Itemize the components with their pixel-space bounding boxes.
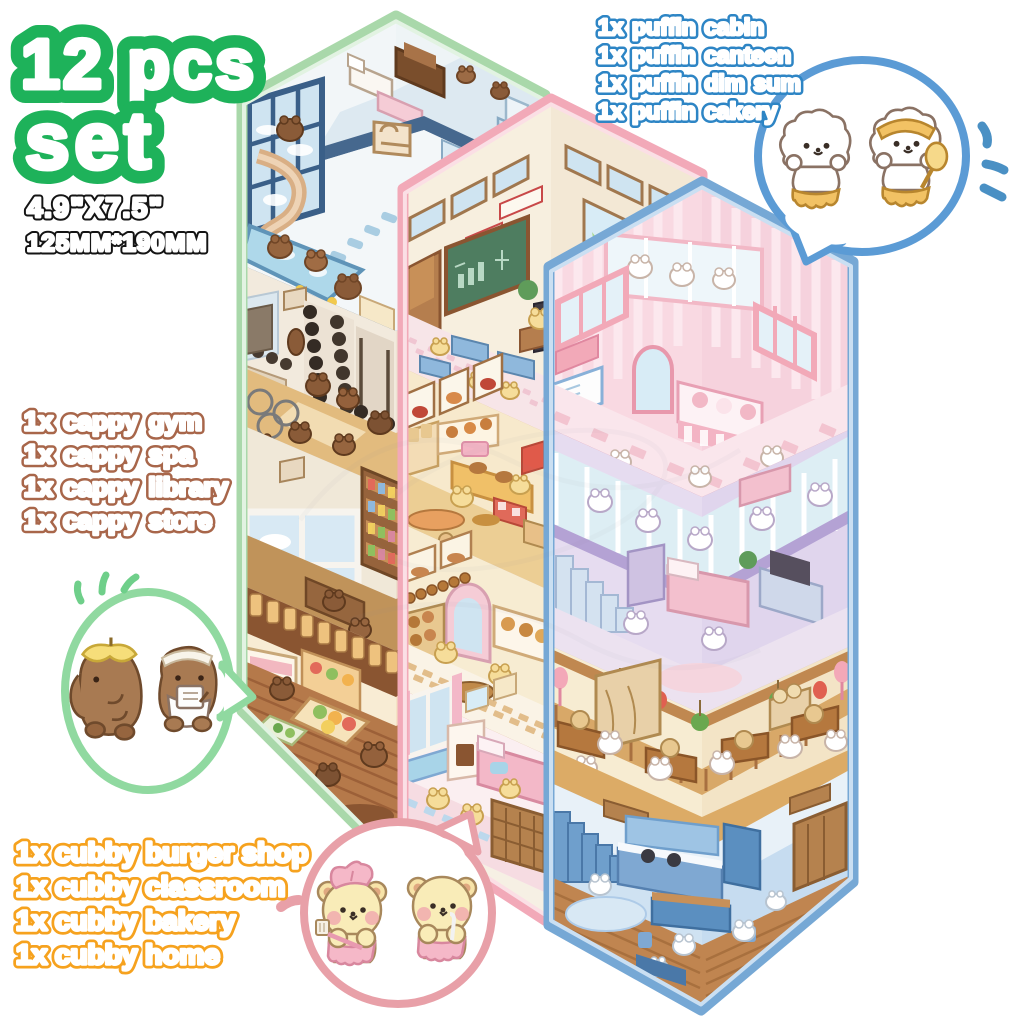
svg-text:1x cubby classroom: 1x cubby classroom [16, 871, 285, 902]
svg-text:1x cappy store: 1x cappy store [24, 505, 212, 535]
svg-text:1x cubby burger shop: 1x cubby burger shop [16, 837, 309, 868]
svg-text:125MM*190MM: 125MM*190MM [27, 230, 207, 257]
svg-text:1x cappy spa: 1x cappy spa [24, 439, 194, 469]
svg-text:1x puffin dim sum: 1x puffin dim sum [598, 70, 801, 96]
svg-text:4.9"X7.5": 4.9"X7.5" [27, 192, 164, 223]
svg-text:12 pcs: 12 pcs [21, 25, 257, 103]
svg-text:set: set [25, 96, 156, 185]
svg-text:1x puffin cabin: 1x puffin cabin [598, 14, 764, 40]
svg-text:1x puffin canteen: 1x puffin canteen [598, 42, 791, 68]
svg-text:1x cubby home: 1x cubby home [16, 939, 220, 970]
svg-text:1x cappy library: 1x cappy library [24, 472, 229, 502]
svg-text:1x cappy gym: 1x cappy gym [24, 406, 202, 436]
svg-text:1x puffin cakery: 1x puffin cakery [598, 98, 777, 124]
svg-text:1x cubby bakery: 1x cubby bakery [16, 905, 236, 936]
